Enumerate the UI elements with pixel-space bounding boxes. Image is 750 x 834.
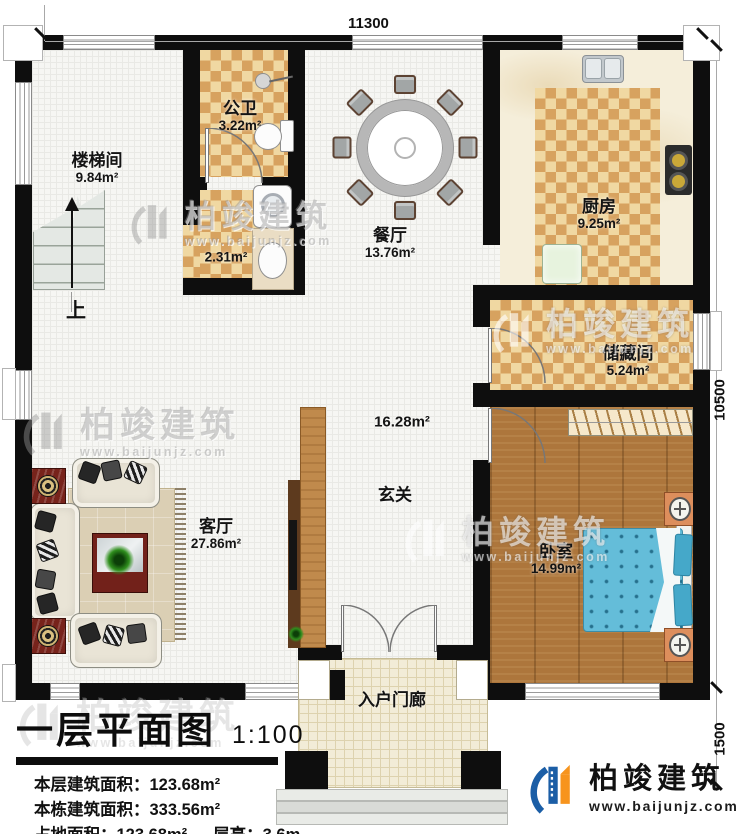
nightstand: [664, 628, 696, 662]
room-label-foyer: 玄关: [378, 485, 412, 504]
wall-segment: [483, 35, 562, 50]
title-underline: [16, 757, 278, 765]
room-label-storage: 储藏间5.24m²: [603, 344, 654, 378]
window: [50, 683, 80, 700]
wall-segment: [155, 35, 352, 50]
wall-segment: [437, 645, 490, 660]
toilet-tank: [280, 120, 294, 152]
wall-segment: [15, 185, 32, 370]
tv-plant: [288, 626, 304, 642]
sink-bowl: [604, 58, 621, 79]
brand-logo: 柏竣建筑 www.baijunjz.com: [528, 760, 739, 818]
bed-pillow: [673, 584, 693, 627]
wardrobe: [568, 409, 693, 436]
stat-footprint: 占地面积：123.68m²层高：3.6m: [34, 823, 305, 834]
plan-scale: 1:100: [232, 721, 305, 750]
wall-segment: [183, 50, 200, 225]
porch-notch: [456, 660, 488, 700]
stat-floor-area: 本层建筑面积：123.68m²: [34, 773, 305, 798]
dimension-line-top: [45, 41, 702, 42]
nightstand-lamp: [669, 633, 691, 657]
refrigerator: [542, 244, 582, 284]
wall-segment: [80, 683, 245, 700]
wall-segment: [183, 177, 207, 190]
dining-chair: [459, 137, 478, 159]
room-label-utility: 2.31m²: [205, 249, 248, 264]
window: [15, 370, 32, 420]
end-table-medallion: [37, 475, 59, 497]
porch-step: [276, 801, 508, 813]
dimension-porch-label: 1500: [712, 722, 729, 755]
stove-burner: [669, 172, 688, 191]
dining-chair: [394, 75, 416, 94]
title-block: 一层平面图 1:100 本层建筑面积：123.68m² 本栋建筑面积：333.5…: [16, 700, 305, 834]
room-label-porch: 入户门廊: [358, 690, 426, 709]
entry-door-arc: [390, 605, 438, 653]
wall-segment: [473, 300, 490, 327]
nightstand-lamp: [669, 497, 691, 521]
stair-arrow-shaft: [71, 210, 73, 288]
dining-chair: [394, 201, 416, 220]
stat-building-area: 本栋建筑面积：333.56m²: [34, 798, 305, 823]
dining-table-center: [394, 137, 416, 159]
wall-segment: [693, 370, 710, 700]
rug-fringe: [175, 488, 186, 642]
tv-screen: [289, 520, 297, 590]
wall-segment: [693, 35, 710, 313]
end-table-medallion: [37, 625, 59, 647]
wall-segment: [483, 50, 500, 245]
washer-drum: [261, 193, 285, 217]
plan-stats: 本层建筑面积：123.68m² 本栋建筑面积：333.56m² 占地面积：123…: [34, 773, 305, 834]
tv-panel: [300, 407, 326, 648]
floor-plan-canvas: 上: [0, 0, 750, 834]
stove-burner: [669, 151, 688, 170]
room-label-bedroom: 卧室14.99m²: [531, 542, 581, 576]
window: [15, 82, 32, 185]
plant: [104, 545, 134, 575]
extension-box: [710, 311, 722, 371]
stair-arrow-head: [65, 197, 79, 211]
bed-pillow: [673, 534, 693, 577]
window: [352, 35, 483, 50]
extension-box: [2, 664, 16, 702]
sink-basin: [258, 242, 287, 279]
wall-segment: [473, 390, 710, 407]
sofa-pillow: [34, 568, 56, 590]
room-label-foyer-area: 16.28m²: [374, 415, 430, 432]
room-label-kitchen: 厨房9.25m²: [578, 197, 621, 231]
wall-segment: [15, 420, 32, 700]
sofa-pillow: [100, 459, 123, 482]
wall-segment: [660, 683, 710, 700]
porch-notch: [298, 660, 330, 700]
window: [63, 35, 155, 50]
brand-logo-text: 柏竣建筑 www.baijunjz.com: [589, 765, 739, 813]
window: [562, 35, 638, 50]
dining-chair: [333, 137, 352, 159]
stair-up-label: 上: [60, 294, 92, 318]
nightstand: [664, 492, 696, 526]
wall-segment: [473, 285, 710, 300]
window: [693, 313, 710, 370]
porch-step: [276, 789, 508, 801]
room-label-stairwell: 楼梯间9.84m²: [72, 151, 123, 185]
porch-pillar: [461, 751, 501, 790]
sink-bowl: [585, 58, 602, 79]
extension-box: [2, 368, 16, 420]
bedroom-door-arc: [490, 408, 546, 464]
utility-doorway-tile: [183, 225, 200, 278]
room-label-dining: 餐厅13.76m²: [365, 226, 415, 260]
storage-door-arc: [490, 328, 546, 384]
window: [245, 683, 300, 700]
dimension-right-label: 10500: [712, 379, 729, 421]
room-label-bathroom: 公卫3.22m²: [219, 99, 262, 133]
window: [525, 683, 660, 700]
porch-step: [276, 813, 508, 825]
room-label-living: 客厅27.86m²: [191, 517, 241, 551]
entry-door-arc: [342, 605, 390, 653]
page-title: 一层平面图: [16, 700, 216, 754]
sofa-pillow: [126, 623, 147, 644]
brand-logo-icon: [528, 760, 580, 818]
title-row: 一层平面图 1:100: [16, 700, 305, 754]
wall-segment: [15, 683, 50, 700]
dimension-top-label: 11300: [348, 15, 389, 32]
